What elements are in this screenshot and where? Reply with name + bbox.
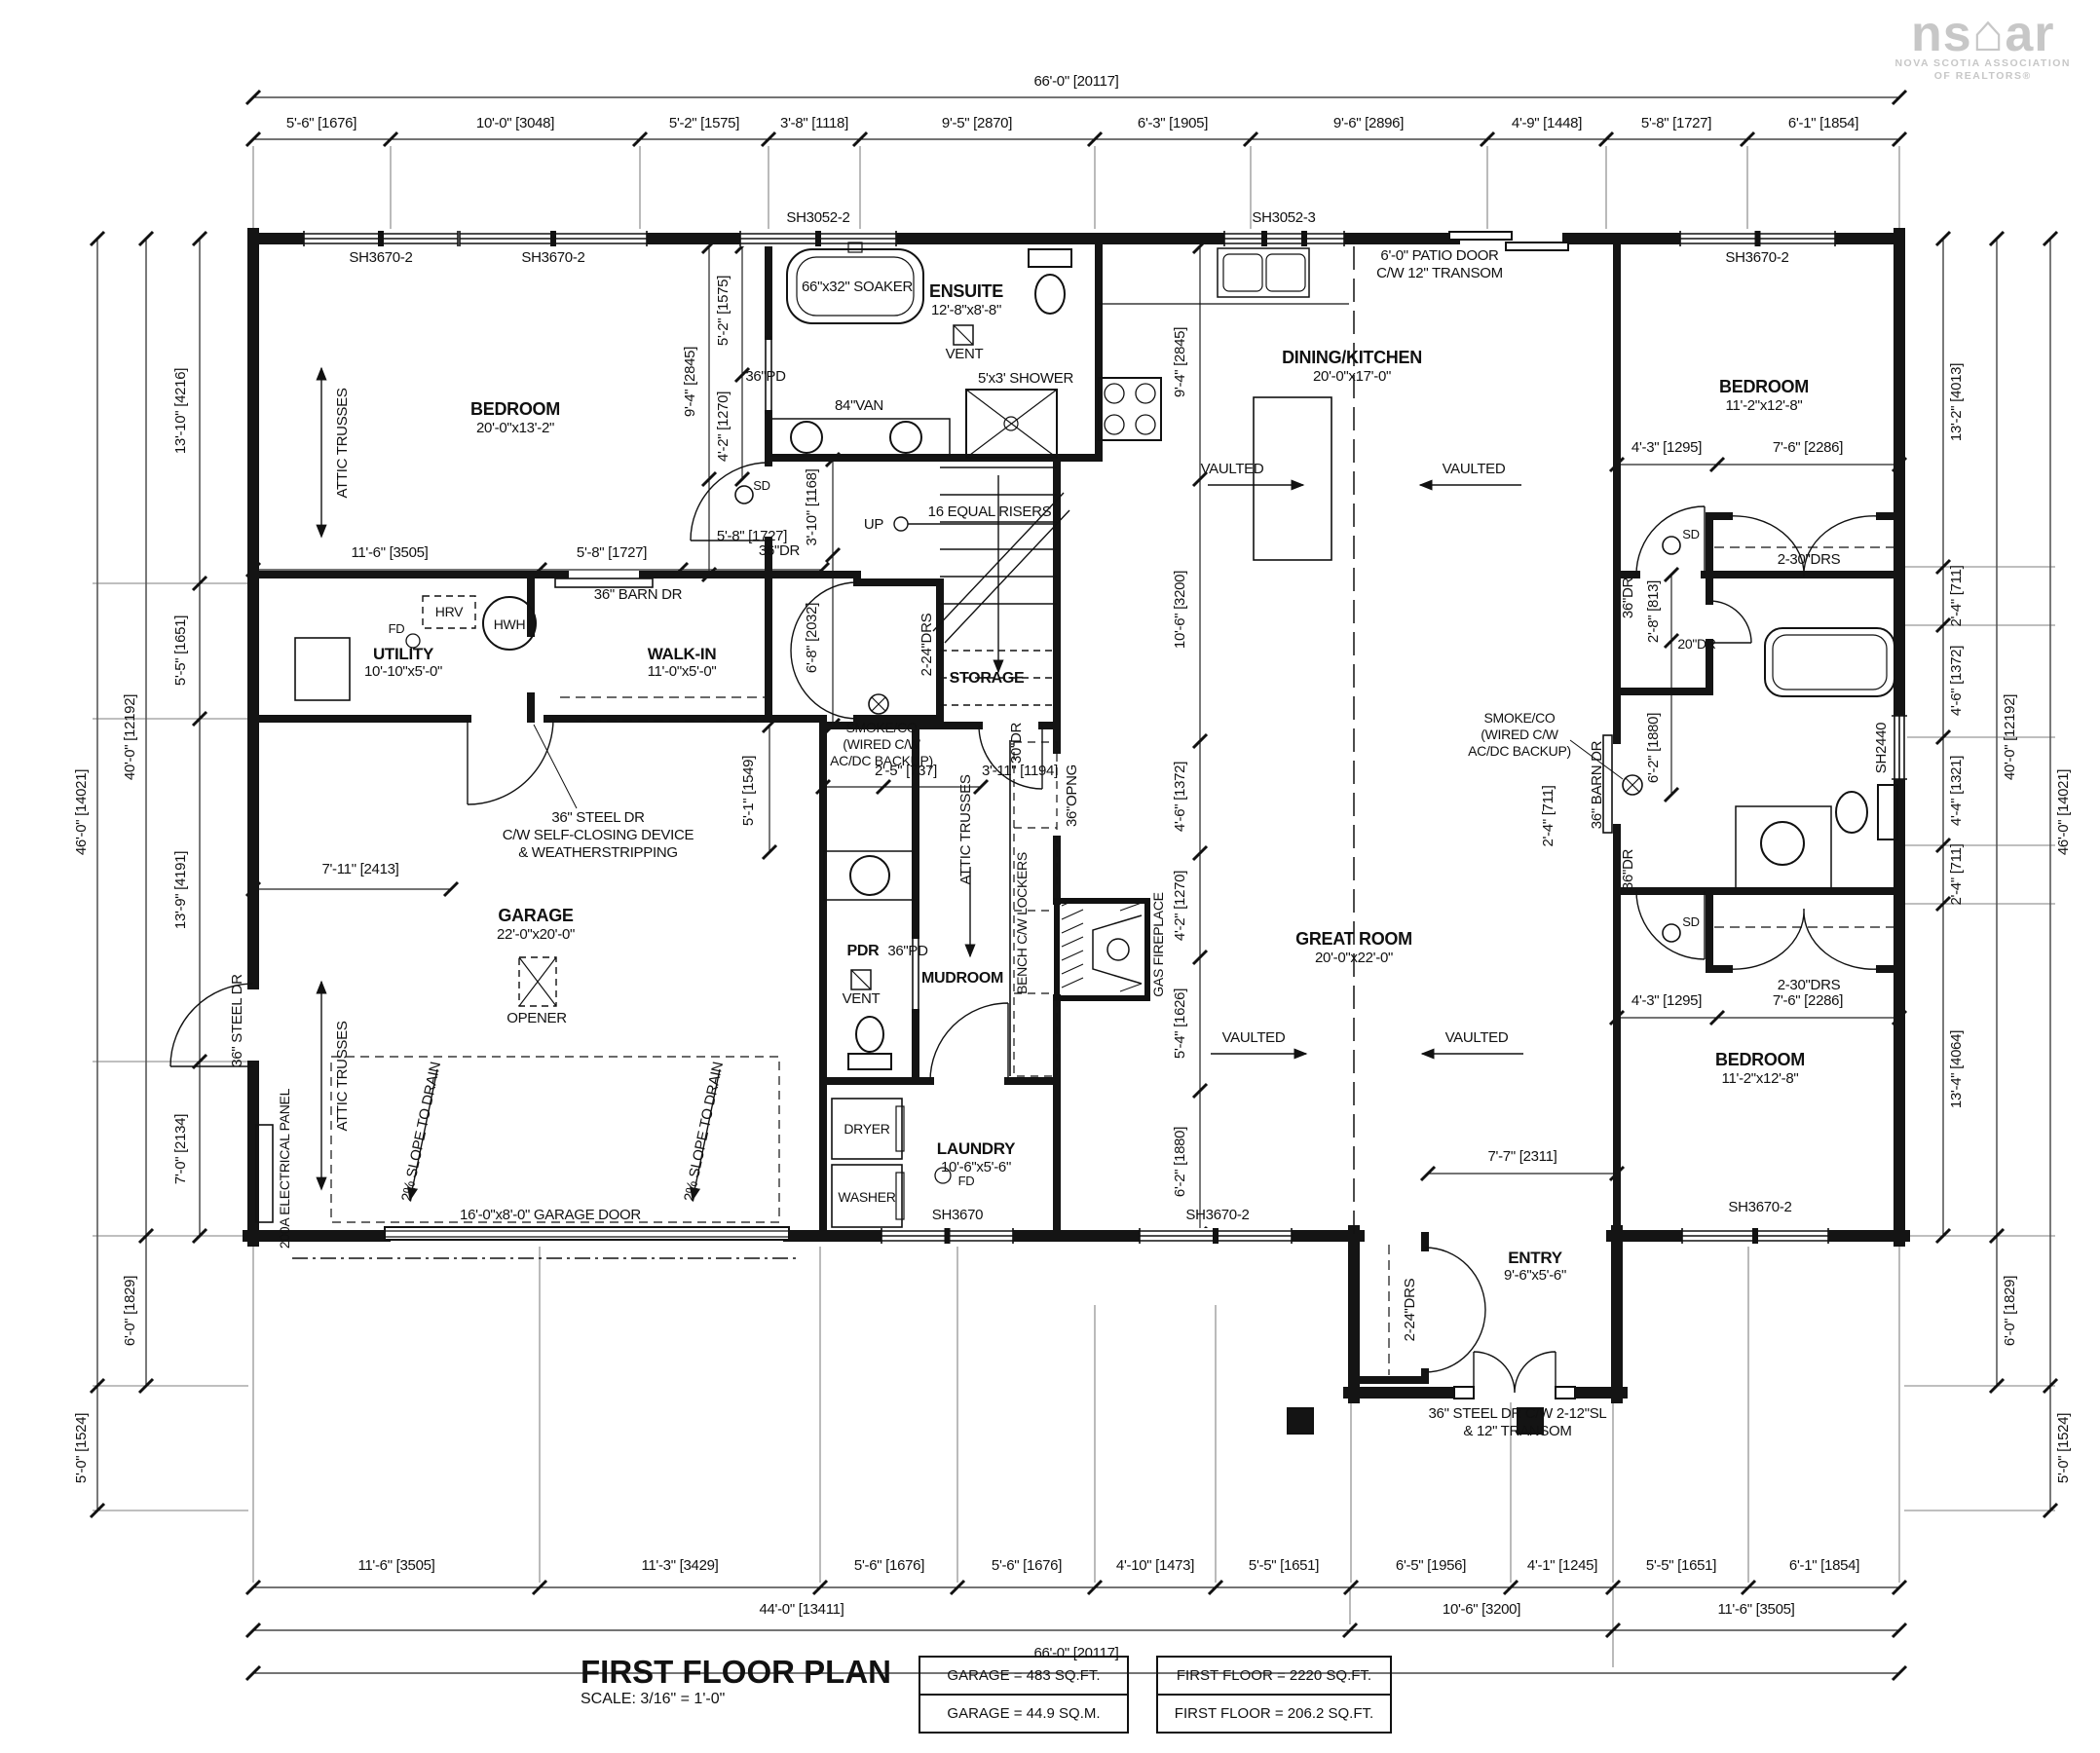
- plan-label: 13'-4" [4064]: [1948, 1030, 1965, 1108]
- plan-label: 40'-0" [12192]: [122, 694, 138, 780]
- plan-label: 22'-0"x20'-0": [497, 926, 575, 943]
- plan-label: 9'-4" [2845]: [1172, 327, 1188, 397]
- plan-label: 36"DR: [759, 542, 801, 559]
- plan-label: 6'-3" [1905]: [1138, 115, 1208, 131]
- plan-label: 6'-0" [1829]: [122, 1276, 138, 1346]
- room-label-pdr: PDR: [847, 943, 881, 959]
- plan-label: 5'-2" [1575]: [669, 115, 739, 131]
- plan-label: VENT: [946, 346, 984, 362]
- floor-area-sqm: FIRST FLOOR = 206.2 SQ.FT.: [1158, 1694, 1390, 1732]
- plan-label: SH3670-2: [1728, 1199, 1791, 1215]
- plan-label: 4'-3" [1295]: [1631, 439, 1702, 456]
- plan-label: FD: [958, 1174, 975, 1188]
- room-label-dining-kitchen: DINING/KITCHEN: [1282, 348, 1422, 367]
- plan-label: 30"DR: [1008, 722, 1025, 764]
- garage-area-sqm: GARAGE = 44.9 SQ.M.: [920, 1694, 1127, 1732]
- plan-label: 44'-0" [13411]: [759, 1601, 844, 1618]
- room-label-bedroom-1: BEDROOM: [470, 399, 560, 419]
- plan-label: 10'-10"x5'-0": [364, 663, 442, 680]
- plan-label: (WIRED C/W: [1481, 727, 1559, 742]
- room-label-garage: GARAGE: [498, 906, 573, 925]
- plan-label: 200A ELECTRICAL PANEL: [277, 1088, 292, 1249]
- plan-label: 6'-2" [1880]: [1172, 1127, 1188, 1197]
- pdr-toilet: [856, 1017, 883, 1052]
- plan-label: 11'-2"x12'-8": [1722, 1070, 1799, 1087]
- stove: [1099, 378, 1161, 440]
- floor-plan-drawing: 66'-0" [20117]5'-6" [1676]10'-0" [3048]5…: [0, 0, 2100, 1753]
- plan-label: VAULTED: [1443, 461, 1506, 477]
- plan-label: SD: [1682, 914, 1699, 929]
- plan-label: HWH: [494, 616, 526, 632]
- bath-vanity: [1736, 806, 1831, 888]
- plan-label: 4'-6" [1372]: [1172, 762, 1188, 832]
- plan-label: 9'-5" [2870]: [942, 115, 1012, 131]
- plan-label: SH3670-2: [1725, 249, 1788, 266]
- plan-label: VAULTED: [1201, 461, 1264, 477]
- plan-label: SMOKE/CO: [845, 720, 917, 735]
- plan-label: 6'-1" [1854]: [1788, 115, 1858, 131]
- dimension-lines: [97, 97, 2050, 1673]
- plan-label: 11'-2"x12'-8": [1726, 397, 1803, 414]
- plan-label: OPENER: [506, 1010, 567, 1026]
- plan-label: 4'-2" [1270]: [715, 392, 731, 462]
- plan-label: 2-30"DRS: [1778, 977, 1841, 993]
- plan-label: 16 EQUAL RISERS: [928, 504, 1052, 520]
- smoke-co-icon: [1623, 775, 1642, 795]
- room-label-utility: UTILITY: [373, 645, 434, 663]
- plan-label: 11'-6" [3505]: [1717, 1601, 1794, 1618]
- plan-label: 13'-10" [4216]: [172, 368, 189, 454]
- plan-label: 5'-4" [1626]: [1172, 988, 1188, 1059]
- plan-label: (WIRED C/W: [843, 736, 921, 752]
- logo-text-left: ns: [1911, 6, 1972, 62]
- plan-label: 11'-0"x5'-0": [648, 663, 717, 680]
- plan-label: 2'-4" [711]: [1948, 565, 1965, 626]
- plan-label: 5'-2" [1575]: [715, 276, 731, 346]
- plan-label: 6'-0" PATIO DOOR: [1380, 247, 1499, 264]
- plan-label: 11'-6" [3505]: [357, 1557, 434, 1574]
- plan-label: SH3670-2: [521, 249, 584, 266]
- plan-label: 4'-1" [1245]: [1527, 1557, 1597, 1574]
- plan-label: 5'-1" [1549]: [740, 756, 757, 826]
- plan-label: AC/DC BACKUP): [1468, 743, 1571, 759]
- plan-label: ATTIC TRUSSES: [334, 1021, 351, 1131]
- plan-label: 46'-0" [14021]: [2055, 769, 2072, 855]
- floor-area-sqft: FIRST FLOOR = 2220 SQ.FT.: [1158, 1658, 1390, 1694]
- plan-labels: 66'-0" [20117]5'-6" [1676]10'-0" [3048]5…: [73, 73, 2072, 1661]
- freezer: [295, 638, 350, 700]
- plan-label: 5'-8" [1727]: [1641, 115, 1711, 131]
- plan-label: 11'-3" [3429]: [641, 1557, 718, 1574]
- plan-label: 10'-6" [3200]: [1443, 1601, 1520, 1618]
- plan-label: VAULTED: [1445, 1029, 1509, 1046]
- plan-label: 5'-0" [1524]: [2055, 1413, 2072, 1483]
- plan-label: 36" BARN DR: [1589, 740, 1605, 829]
- plan-label: 2% SLOPE TO DRAIN: [398, 1061, 444, 1203]
- windows: [304, 231, 1907, 1244]
- plan-label: 2-30"DRS: [1778, 551, 1841, 568]
- plan-label: 2-24"DRS: [919, 613, 935, 676]
- room-label-entry: ENTRY: [1508, 1249, 1562, 1267]
- plan-label: 36" STEEL DR: [551, 809, 645, 826]
- plan-label: SH2440: [1873, 723, 1890, 773]
- plan-label: 2'-4" [711]: [1540, 785, 1556, 846]
- plan-label: VENT: [843, 990, 881, 1007]
- dimension-ticks: [91, 91, 2057, 1680]
- plan-label: 7'-6" [2286]: [1773, 992, 1843, 1009]
- smoke-co-icon: [869, 694, 888, 714]
- porch-post: [1288, 1408, 1313, 1434]
- plan-label: DRYER: [844, 1121, 889, 1137]
- plan-label: 36"OPNG: [1064, 765, 1080, 827]
- floor-area-table: FIRST FLOOR = 2220 SQ.FT. FIRST FLOOR = …: [1156, 1656, 1392, 1734]
- plan-label: C/W 12" TRANSOM: [1376, 265, 1503, 281]
- plan-label: SH3052-2: [786, 209, 849, 226]
- gas-fireplace: [1057, 900, 1147, 998]
- plan-label: 10'-0" [3048]: [476, 115, 554, 131]
- plan-label: 40'-0" [12192]: [2002, 694, 2018, 780]
- logo-text-right: ar: [2005, 6, 2054, 62]
- plan-label: 84"VAN: [835, 397, 883, 414]
- plan-label: 36" STEEL DR C/W 2-12"SL: [1429, 1405, 1607, 1422]
- plan-label: SH3670-2: [1185, 1207, 1249, 1223]
- plan-label: HRV: [435, 604, 464, 619]
- plan-label: WASHER: [838, 1189, 895, 1205]
- logo-subtitle-2: OF REALTORS®: [1894, 70, 2071, 83]
- plan-label: SH3670: [932, 1207, 983, 1223]
- plan-label: 7'-11" [2413]: [321, 861, 398, 877]
- plan-label: 2% SLOPE TO DRAIN: [681, 1061, 727, 1203]
- toilet-tank: [1029, 249, 1071, 267]
- plan-label: 11'-6" [3505]: [351, 544, 428, 561]
- plan-label: 5'-8" [1727]: [577, 544, 647, 561]
- plan-label: 5'-5" [1651]: [1646, 1557, 1716, 1574]
- plan-label: 6'-2" [1880]: [1645, 713, 1662, 783]
- room-label-mudroom: MUDROOM: [921, 970, 1003, 987]
- plan-label: 20"DR: [1677, 636, 1715, 652]
- plan-label: 20'-0"x13'-2": [476, 420, 554, 436]
- room-label-great-room: GREAT ROOM: [1295, 929, 1412, 949]
- plan-label: 2'-4" [711]: [1948, 843, 1965, 905]
- plan-label: 6'-5" [1956]: [1396, 1557, 1466, 1574]
- extension-lines: [93, 146, 2055, 1667]
- plan-label: 9'-6"x5'-6": [1504, 1267, 1566, 1284]
- house-icon: ⌂: [1972, 4, 2006, 62]
- plan-label: GAS FIREPLACE: [1150, 892, 1166, 996]
- plan-label: SD: [1682, 527, 1699, 541]
- plan-label: 36" STEEL DR: [229, 974, 245, 1067]
- plan-label: 12'-8"x8'-8": [931, 302, 1001, 318]
- plan-label: 5'-5" [1651]: [172, 615, 189, 686]
- room-label-bedroom-2: BEDROOM: [1719, 377, 1809, 396]
- plan-label: 66"x32" SOAKER: [802, 279, 913, 295]
- title-block: FIRST FLOOR PLAN SCALE: 3/16" = 1'-0" GA…: [581, 1656, 1392, 1734]
- plan-label: 36" BARN DR: [594, 586, 683, 603]
- plan-label: & 12" TRANSOM: [1463, 1423, 1571, 1439]
- smoke-detector-icon: [735, 486, 753, 504]
- plan-label: 4'-4" [1321]: [1948, 756, 1965, 826]
- plan-label: 6'-1" [1854]: [1789, 1557, 1859, 1574]
- plan-label: 4'-9" [1448]: [1512, 115, 1582, 131]
- toilet-bowl: [1836, 792, 1867, 833]
- plan-label: 4'-2" [1270]: [1172, 871, 1188, 941]
- room-label-laundry: LAUNDRY: [937, 1139, 1016, 1158]
- plan-label: 5'-6" [1676]: [286, 115, 356, 131]
- room-label-storage: STORAGE: [950, 670, 1025, 687]
- plan-label: 13'-9" [4191]: [172, 851, 189, 929]
- plan-label: 7'-0" [2134]: [172, 1114, 189, 1184]
- nsar-logo: ns⌂ar NOVA SCOTIA ASSOCIATION OF REALTOR…: [1894, 10, 2071, 83]
- plan-label: 10'-6"x5'-6": [941, 1159, 1011, 1175]
- plan-label: 9'-6" [2896]: [1333, 115, 1404, 131]
- plan-label: UP: [864, 516, 884, 533]
- plan-label: 5'-6" [1676]: [854, 1557, 924, 1574]
- floor-plan-sheet: 66'-0" [20117]5'-6" [1676]10'-0" [3048]5…: [0, 0, 2100, 1753]
- plan-label: 2-24"DRS: [1402, 1278, 1418, 1341]
- room-label-bedroom-3: BEDROOM: [1715, 1050, 1805, 1069]
- plan-label: SMOKE/CO: [1483, 710, 1555, 726]
- plan-label: SD: [753, 478, 769, 493]
- plan-label: 7'-7" [2311]: [1487, 1148, 1556, 1165]
- plan-label: ATTIC TRUSSES: [334, 388, 351, 498]
- plan-label: 36"PD: [887, 943, 928, 959]
- plan-label: 66'-0" [20117]: [1033, 73, 1118, 90]
- plan-label: 36"DR: [1620, 848, 1636, 890]
- plan-label: 5'x3' SHOWER: [978, 370, 1073, 387]
- bath-tub: [1765, 628, 1894, 696]
- annotation-arrows: [321, 368, 1523, 1200]
- plan-label: 5'-6" [1676]: [992, 1557, 1062, 1574]
- plan-label: 5'-0" [1524]: [73, 1413, 90, 1483]
- plan-label: 20'-0"x22'-0": [1315, 950, 1393, 966]
- plan-label: 3'-11" [1194]: [982, 763, 1058, 779]
- island: [1254, 397, 1331, 560]
- plan-label: FD: [389, 621, 405, 636]
- plan-label: 5'-8" [1727]: [717, 528, 787, 544]
- garage-area-table: GARAGE = 483 SQ.FT. GARAGE = 44.9 SQ.M.: [919, 1656, 1129, 1734]
- plan-label: 16'-0"x8'-0" GARAGE DOOR: [460, 1207, 641, 1223]
- smoke-detector-icon: [1663, 924, 1680, 942]
- plan-label: 4'-3" [1295]: [1631, 992, 1702, 1009]
- plan-label: 2'-5" [737]: [875, 763, 937, 779]
- plan-label: 13'-2" [4013]: [1948, 363, 1965, 441]
- plan-label: 3'-10" [1168]: [804, 468, 820, 545]
- sheet-scale: SCALE: 3/16" = 1'-0": [581, 1691, 891, 1708]
- plan-label: VAULTED: [1222, 1029, 1286, 1046]
- plan-label: 4'-10" [1473]: [1116, 1557, 1194, 1574]
- plan-label: SH3670-2: [349, 249, 412, 266]
- plan-label: 9'-4" [2845]: [682, 347, 698, 417]
- plan-label: & WEATHERSTRIPPING: [518, 844, 678, 861]
- garage-area-sqft: GARAGE = 483 SQ.FT.: [920, 1658, 1127, 1694]
- plan-label: 20'-0"x17'-0": [1313, 368, 1391, 385]
- plan-label: 5'-5" [1651]: [1249, 1557, 1319, 1574]
- plan-label: 7'-6" [2286]: [1773, 439, 1843, 456]
- room-label-ensuite: ENSUITE: [929, 281, 1003, 301]
- plan-label: 46'-0" [14021]: [73, 769, 90, 855]
- plan-label: C/W SELF-CLOSING DEVICE: [503, 827, 694, 843]
- plan-label: 36"DR: [1620, 577, 1636, 618]
- plan-label: 4'-6" [1372]: [1948, 646, 1965, 716]
- plan-label: ATTIC TRUSSES: [957, 774, 974, 884]
- plan-label: BENCH C/W LOCKERS: [1014, 852, 1030, 994]
- plan-label: 10'-6" [3200]: [1172, 571, 1188, 649]
- plan-label: 3'-8" [1118]: [780, 115, 848, 131]
- plan-label: 36"PD: [745, 368, 786, 385]
- plan-label: 6'-8" [2032]: [804, 603, 820, 673]
- toilet-bowl: [1035, 275, 1065, 314]
- kitchen-sink: [1218, 248, 1309, 297]
- smoke-detector-icon: [1663, 537, 1680, 554]
- sheet-title: FIRST FLOOR PLAN: [581, 1656, 891, 1689]
- plan-label: SH3052-3: [1252, 209, 1315, 226]
- pdr-sink: [850, 856, 889, 895]
- logo-subtitle-1: NOVA SCOTIA ASSOCIATION: [1894, 57, 2071, 70]
- plan-label: 2'-8" [813]: [1645, 580, 1662, 643]
- room-label-walkin: WALK-IN: [648, 645, 717, 663]
- plan-label: 6'-0" [1829]: [2002, 1276, 2018, 1346]
